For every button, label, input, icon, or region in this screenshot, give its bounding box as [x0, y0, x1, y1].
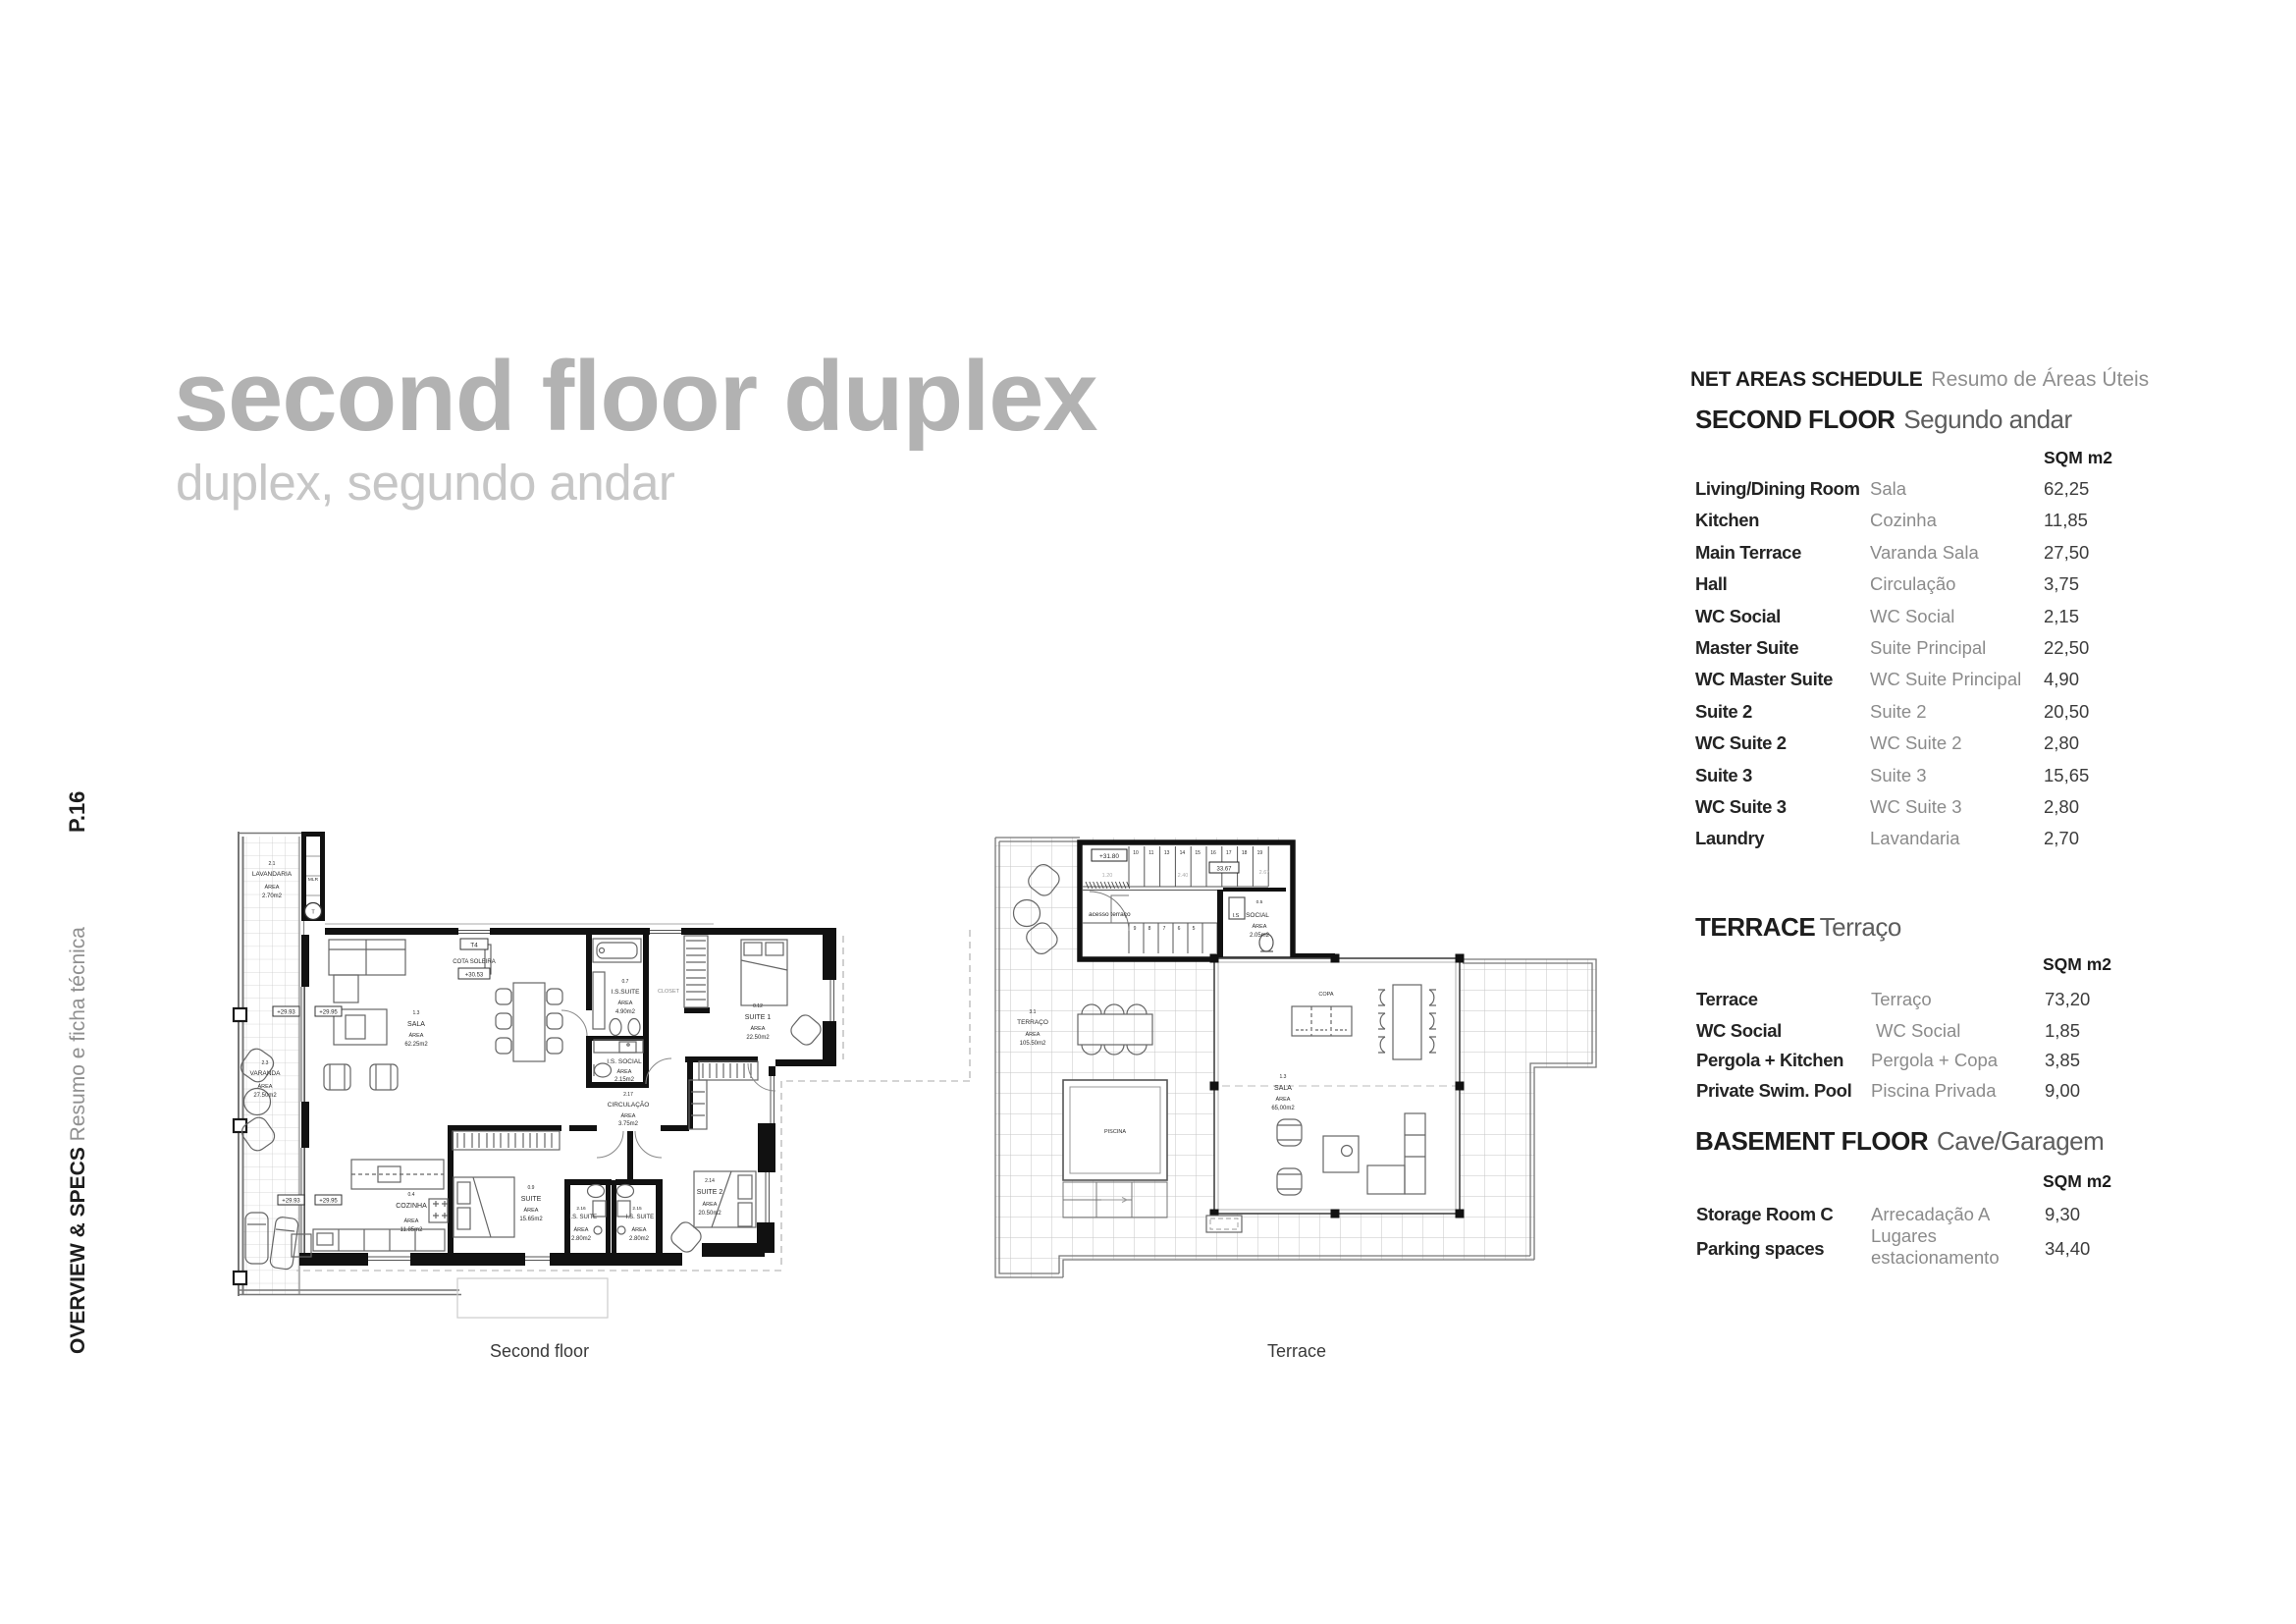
svg-text:I.S. SOCIAL: I.S. SOCIAL — [607, 1058, 642, 1065]
svg-text:2.80m2: 2.80m2 — [629, 1236, 650, 1242]
svg-text:SUITE 2: SUITE 2 — [697, 1189, 723, 1196]
svg-text:6: 6 — [1178, 926, 1181, 932]
svg-text:T4: T4 — [470, 943, 478, 949]
svg-text:15.65m2: 15.65m2 — [519, 1217, 543, 1222]
svg-text:13: 13 — [1164, 850, 1170, 856]
svg-text:33.67: 33.67 — [1216, 867, 1232, 873]
svg-text:0.7: 0.7 — [622, 979, 629, 985]
svg-text:65,00m2: 65,00m2 — [1271, 1106, 1295, 1111]
svg-text:ÁREA: ÁREA — [621, 1112, 636, 1119]
svg-text:ÁREA: ÁREA — [524, 1207, 539, 1214]
svg-text:I.S: I.S — [1233, 913, 1240, 919]
svg-text:1.3: 1.3 — [413, 1010, 420, 1016]
svg-text:19: 19 — [1257, 850, 1263, 856]
svg-text:0.12: 0.12 — [753, 1003, 763, 1009]
svg-text:2.3: 2.3 — [262, 1060, 269, 1066]
svg-text:I.S. SUITE: I.S. SUITE — [626, 1215, 654, 1220]
svg-text:+29.95: +29.95 — [319, 1010, 338, 1016]
svg-text:+29.93: +29.93 — [282, 1199, 300, 1205]
svg-text:2.70m2: 2.70m2 — [262, 893, 283, 899]
svg-text:PISCINA: PISCINA — [1104, 1129, 1126, 1135]
svg-text:ÁREA: ÁREA — [751, 1025, 766, 1032]
svg-text:ÁREA: ÁREA — [632, 1226, 647, 1233]
svg-text:3.1: 3.1 — [1030, 1009, 1037, 1015]
svg-text:16: 16 — [1210, 850, 1216, 856]
svg-text:+31.80: +31.80 — [1099, 853, 1119, 860]
svg-text:MLR: MLR — [308, 877, 319, 883]
svg-text:ÁREA: ÁREA — [574, 1226, 589, 1233]
svg-text:9: 9 — [1134, 926, 1137, 932]
svg-text:11: 11 — [1148, 850, 1153, 856]
svg-text:17: 17 — [1226, 850, 1232, 856]
svg-text:+29.95: +29.95 — [319, 1199, 338, 1205]
svg-text:LAVANDARIA: LAVANDARIA — [252, 871, 293, 878]
svg-text:ÁREA: ÁREA — [404, 1218, 419, 1224]
svg-text:11.85m2: 11.85m2 — [400, 1227, 424, 1233]
svg-text:1.20: 1.20 — [1102, 873, 1113, 879]
svg-text:1.3: 1.3 — [1280, 1074, 1287, 1080]
svg-text:SUITE 1: SUITE 1 — [745, 1014, 772, 1021]
svg-text:0.5: 0.5 — [1256, 899, 1263, 905]
svg-text:COZINHA: COZINHA — [396, 1203, 427, 1210]
svg-text:2.14: 2.14 — [705, 1178, 715, 1184]
svg-text:15: 15 — [1195, 850, 1201, 856]
svg-text:VARANDA: VARANDA — [250, 1070, 282, 1077]
svg-text:acesso terraço: acesso terraço — [1089, 911, 1131, 918]
svg-text:2.16: 2.16 — [576, 1206, 586, 1212]
svg-text:ÁREA: ÁREA — [1026, 1031, 1041, 1038]
svg-text:18: 18 — [1242, 850, 1248, 856]
svg-text:ÁREA: ÁREA — [409, 1032, 424, 1039]
svg-text:14: 14 — [1180, 850, 1186, 856]
svg-text:2.40: 2.40 — [1178, 873, 1189, 879]
svg-text:ÁREA: ÁREA — [618, 1000, 633, 1006]
svg-text:SALA: SALA — [407, 1021, 425, 1028]
svg-text:20.50m2: 20.50m2 — [698, 1211, 721, 1217]
svg-text:SALA: SALA — [1274, 1085, 1292, 1092]
svg-text:SUITE: SUITE — [521, 1196, 542, 1203]
svg-text:27.50m2: 27.50m2 — [253, 1093, 277, 1099]
svg-text:2.05m2: 2.05m2 — [1250, 933, 1270, 939]
svg-text:2.17: 2.17 — [623, 1092, 633, 1098]
svg-text:+29.93: +29.93 — [277, 1010, 295, 1016]
svg-text:4.90m2: 4.90m2 — [615, 1009, 636, 1015]
svg-text:22.50m2: 22.50m2 — [746, 1035, 770, 1041]
svg-text:ÁREA: ÁREA — [703, 1201, 718, 1208]
svg-text:3.75m2: 3.75m2 — [618, 1121, 639, 1127]
svg-text:2.80m2: 2.80m2 — [571, 1236, 592, 1242]
svg-text:105.50m2: 105.50m2 — [1020, 1041, 1046, 1047]
svg-text:SOCIAL: SOCIAL — [1246, 912, 1269, 919]
svg-text:COPA: COPA — [1318, 992, 1334, 998]
svg-text:ÁREA: ÁREA — [1276, 1096, 1291, 1103]
svg-text:2.15m2: 2.15m2 — [614, 1077, 635, 1083]
svg-text:2.67: 2.67 — [1259, 870, 1270, 876]
svg-text:ÁREA: ÁREA — [258, 1083, 273, 1090]
svg-text:TERRAÇO: TERRAÇO — [1017, 1019, 1048, 1026]
svg-text:CLOSET: CLOSET — [658, 989, 680, 995]
svg-text:8: 8 — [1148, 926, 1151, 932]
svg-text:COTA SOLEIRA: COTA SOLEIRA — [453, 959, 496, 965]
svg-text:+30.53: +30.53 — [465, 973, 484, 979]
svg-text:7: 7 — [1163, 926, 1166, 932]
svg-text:ÁREA: ÁREA — [617, 1068, 632, 1075]
svg-text:62.25m2: 62.25m2 — [404, 1042, 428, 1048]
svg-text:0.9: 0.9 — [528, 1185, 535, 1191]
svg-text:CIRCULAÇÃO: CIRCULAÇÃO — [608, 1100, 650, 1109]
svg-text:I.S. SUITE: I.S. SUITE — [569, 1215, 597, 1220]
svg-text:0.4: 0.4 — [408, 1192, 415, 1198]
svg-text:ÁREA: ÁREA — [1253, 923, 1267, 930]
svg-text:2.15: 2.15 — [632, 1206, 642, 1212]
svg-text:I.S.SUITE: I.S.SUITE — [612, 989, 641, 996]
svg-text:10: 10 — [1133, 850, 1139, 856]
svg-text:ÁREA: ÁREA — [265, 884, 280, 891]
svg-text:2.1: 2.1 — [269, 861, 276, 867]
svg-text:5: 5 — [1193, 926, 1196, 932]
